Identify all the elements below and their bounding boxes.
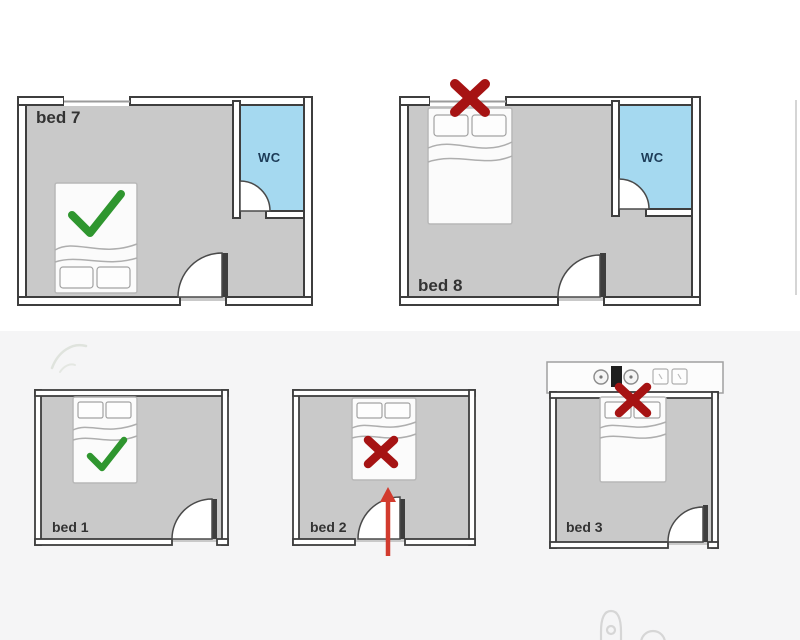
bed1-label: bed 1 bbox=[52, 519, 89, 535]
bed8-door-stub bbox=[600, 253, 606, 297]
bed8-wc-label: WC bbox=[641, 150, 664, 165]
bed7-bed bbox=[55, 183, 137, 293]
floor-plan-bed-3: bed 3 bbox=[547, 362, 723, 548]
bed8-bed bbox=[428, 108, 512, 224]
bed7-label: bed 7 bbox=[36, 108, 80, 127]
bed7-wc-label: WC bbox=[258, 150, 281, 165]
bed3-outlet-strip bbox=[547, 362, 723, 393]
bed3-bed bbox=[600, 397, 666, 482]
bed7-door-stub bbox=[222, 253, 228, 297]
bed8-label: bed 8 bbox=[418, 276, 462, 295]
floor-plan-bed-7: bed 7 WC bbox=[18, 96, 312, 305]
floor-plan-bed-2: bed 2 bbox=[293, 390, 475, 556]
bed3-label: bed 3 bbox=[566, 519, 603, 535]
bed1-bed bbox=[73, 397, 137, 483]
floor-plan-bed-8: bed 8 WC bbox=[400, 84, 700, 305]
floor-plan-bed-1: bed 1 bbox=[35, 390, 228, 545]
bed2-bed bbox=[352, 398, 416, 480]
bed-placement-diagram: bed 7 WC bed 8 bbox=[0, 0, 800, 640]
bed2-label: bed 2 bbox=[310, 519, 347, 535]
